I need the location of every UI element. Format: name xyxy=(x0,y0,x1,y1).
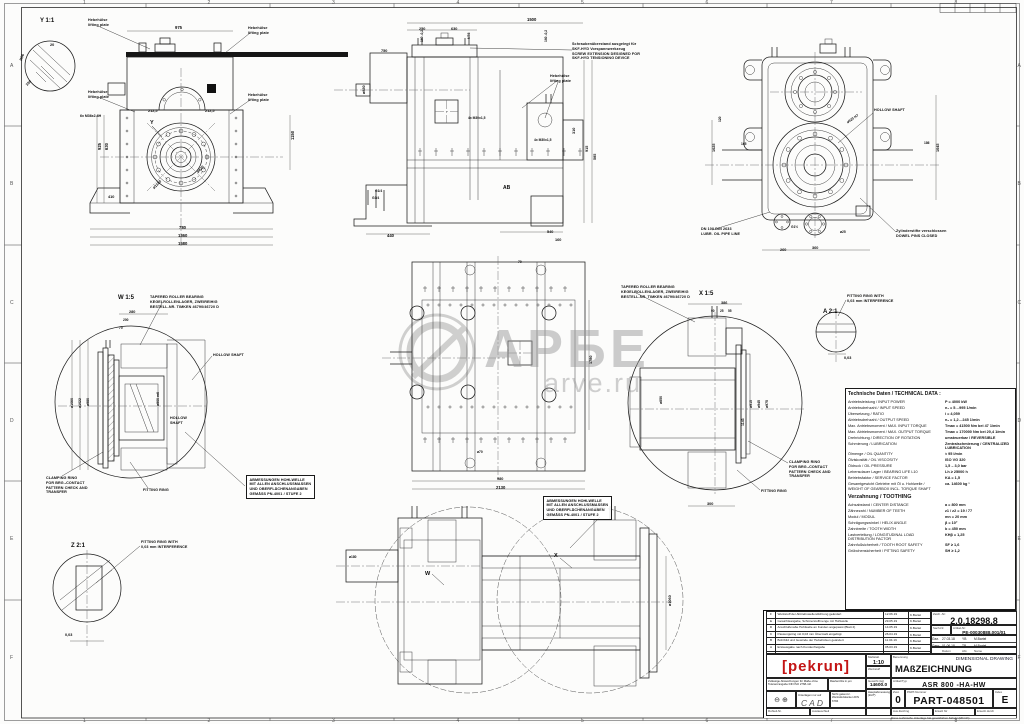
tech-table-row: Ölviskosität / OIL VISCOSITYISO VG 320 xyxy=(848,458,1013,462)
generated-fasteners xyxy=(126,70,848,443)
revision-row: CPassungsring mit 0,03 mm Übermaß eingef… xyxy=(767,632,930,639)
article-number-cell: Artikel-Nr: PE-00030888.001/01 xyxy=(951,625,1017,635)
shaft-section-view xyxy=(336,506,683,693)
tech-table-row: Schrägungswinkel / HELIX ANGLEβ = 10° xyxy=(848,521,1013,525)
part-number: PART-048501 xyxy=(906,695,992,707)
revision-state-cell: Zust. 0 xyxy=(891,689,905,708)
scale-value: 1:10 xyxy=(867,660,890,666)
tech-table-row: Grübchensicherheit / PITTING SAFETYSH ≥ … xyxy=(848,549,1013,553)
watermark-url: arve.ru xyxy=(544,368,642,399)
tech-table-row: Max. Antriebsmoment / MAX. INPUT TORQUET… xyxy=(848,424,1013,428)
tech-table-row: Antriebsdrehzahl / INPUT SPEEDn₁ = 5…995… xyxy=(848,406,1013,410)
tech-table-row: Lebensdauer Lager / BEARING LIFE L10Lh ≥… xyxy=(848,470,1013,474)
tech-table-row: Antriebsleistung / INPUT POWERP = 4000 k… xyxy=(848,400,1013,404)
tech-table-row: Übersetzung / RATIOi = 4,059 xyxy=(848,412,1013,416)
revision-row: DAnschlußmaße Hohlwelle an Kunden angepa… xyxy=(767,625,930,632)
revision-row: AErstausgabe nach Kundenfreigabe05.03.19… xyxy=(767,645,930,652)
front-view xyxy=(25,31,348,247)
tech-table-row: Zahnbreite / TOOTH WIDTHb = 450 mm xyxy=(848,527,1013,531)
approval-rows: Gez. 27.03.18 YB M.Bartel Gepr. 01.06.18… xyxy=(931,635,1017,647)
detail-x xyxy=(628,304,806,506)
title-block: FWerkstoff der Abtriebswellendichtung ge… xyxy=(763,610,1016,718)
detail-w xyxy=(55,314,207,478)
detail-a xyxy=(816,310,856,362)
technical-data-table: Technische Daten / TECHNICAL DATA : Antr… xyxy=(845,388,1016,610)
edges-note-cell: Nicht gekennz. Werkstückkanten DIN 6784 xyxy=(830,691,866,708)
tech-table-row: Lastverteilung / LONGITUDINAL LOADDISTRI… xyxy=(848,533,1013,542)
roughness-cell: Rauheit Ra in µm xyxy=(828,678,866,691)
tech-table-section: Verzahnung / TOOTHING xyxy=(848,494,1013,500)
tech-table-row: Max. Abtriebsmoment / MAX. OUTPUT TORQUE… xyxy=(848,430,1013,434)
revision-table: FWerkstoff der Abtriebswellendichtung ge… xyxy=(766,611,931,654)
tech-table-row: Gesamtgewicht Getriebe mit Öl u. Hohlwel… xyxy=(848,482,1013,491)
index-value: E xyxy=(994,695,1016,706)
title-german: MAßZEICHNUNG xyxy=(895,664,972,675)
drawing-number-cell: Zeich.-Nr: 2.0.18298.8 xyxy=(931,611,1017,625)
title-cell: Benennung DIMENSIONAL DRAWING MAßZEICHNU… xyxy=(891,654,1017,678)
drawing-sheet: АРБЕ arve.ru Hebehülselifting plateHebeh… xyxy=(0,0,1024,724)
tech-table-row: Modul / MODULmn = 20 mm xyxy=(848,515,1013,519)
spare-cell xyxy=(866,708,891,716)
scale-cell: Maßstab 1:10 xyxy=(866,654,891,666)
rear-view xyxy=(705,39,940,250)
tech-table-row: Zahnfußsicherheit / TOOTH ROOT SAFETYSF … xyxy=(848,543,1013,547)
material-cell: Werkstoff xyxy=(866,666,891,678)
source-drawing-cell: Aus.Zeichng xyxy=(891,708,933,716)
pekrun-logo: [pekrun] xyxy=(766,654,866,678)
revision-row: EGewichtsangabe, Schmierstoffmenge mit H… xyxy=(767,619,930,626)
weight-cell: Gewicht (kg) 14600.0 xyxy=(866,678,891,689)
side-view xyxy=(334,23,592,234)
title-english: DIMENSIONAL DRAWING xyxy=(956,657,1013,662)
revision-state: 0 xyxy=(892,695,904,706)
type-cell: Artikel/Typ: ASR 800 -HA-HW xyxy=(891,678,1017,689)
cad-stamp: CAD xyxy=(797,698,829,708)
tech-table-row: Betriebsfaktor / SERVICE FACTORKA = 1,5 xyxy=(848,476,1013,480)
tech-table-row: Drehrichtung / DIRECTION OF ROTATIONumst… xyxy=(848,436,1013,440)
tech-table-title: Technische Daten / TECHNICAL DATA : xyxy=(848,391,1013,397)
tech-table-row: Schmierung / LUBRICATIONZentralschmierun… xyxy=(848,442,1013,451)
detail-z xyxy=(53,550,121,646)
weight-value: 14600.0 xyxy=(867,683,890,688)
tolerance-cell: Zulässige Abweichungen für Maße ohne Tol… xyxy=(766,678,828,691)
tech-table-row: Zähnezahl / NUMBER OF TEETHz1 / z2 = 19 … xyxy=(848,509,1013,513)
tech-table-row: Abtriebsdrehzahl / OUTPUT SPEEDn₂ = 1,2…… xyxy=(848,418,1013,422)
gearbox-type: ASR 800 -HA-HW xyxy=(892,682,1016,689)
index-cell: Index E xyxy=(993,689,1017,708)
raw-part-cell: Rohteil-Nr. xyxy=(766,708,810,716)
legal-protection-note: Diese technische Unterlage hat gesetzlic… xyxy=(891,716,1017,720)
projection-symbol: ⊖ ⊕ xyxy=(766,691,796,708)
exchange-part-cell: Austauschteil xyxy=(810,708,866,716)
cad-cell: Unterlagen nur auf CAD xyxy=(796,691,830,708)
sachnr-cell: Sach-Nr. xyxy=(931,625,951,635)
main-dimensions-cell: Hauptabmessungen (Zoll*) xyxy=(866,689,891,708)
part-number-cell: PART-Nummer PART-048501 xyxy=(905,689,993,708)
drawing-number: 2.0.18298.8 xyxy=(932,616,1016,626)
tech-table-row: Achsabstand / CENTER DISTANCEa = 800 mm xyxy=(848,503,1013,507)
replacement-for-cell: Ersatz für xyxy=(933,708,975,716)
approval-header: Datum Abt. Name xyxy=(931,647,1017,654)
tech-table-row: Öldruck / OIL PRESSURE1,5 – 3,0 bar xyxy=(848,464,1013,468)
revision-row: BBohrbild und Gewinde der Hebehülsen geä… xyxy=(767,638,930,645)
revision-row: FWerkstoff der Abtriebswellendichtung ge… xyxy=(767,612,930,619)
tech-table-row: Ölmenge / OIL QUANTITY≈ 95 l/min xyxy=(848,452,1013,456)
replaced-by-cell: Ersetzt durch xyxy=(975,708,1017,716)
